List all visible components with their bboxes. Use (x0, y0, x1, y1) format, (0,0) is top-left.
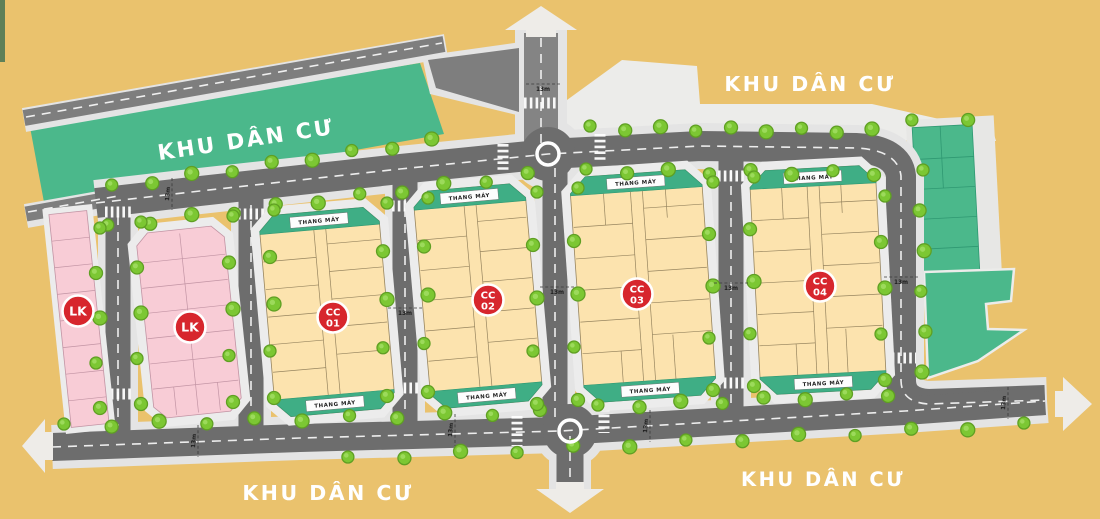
road-width-label: 13m (165, 187, 172, 201)
road-width-label: 13m (191, 434, 198, 448)
tree-icon (422, 386, 435, 399)
tree-icon (1018, 417, 1030, 429)
tree-icon (621, 167, 634, 180)
tree-icon (830, 126, 843, 139)
tree-icon (480, 176, 492, 188)
tree-icon (592, 399, 604, 411)
tree-icon (748, 171, 760, 183)
tree-icon (531, 186, 543, 198)
tree-icon (919, 325, 932, 338)
tree-icon (623, 440, 637, 454)
tree-icon (511, 446, 523, 458)
road-width-label: 13m (643, 419, 650, 433)
badge-number: 02 (481, 302, 495, 313)
tree-icon (661, 163, 675, 177)
tree-icon (268, 392, 281, 405)
tree-icon (580, 163, 592, 175)
tree-icon (690, 125, 702, 137)
tree-icon (915, 285, 927, 297)
edge-green-strip (0, 0, 5, 62)
tree-icon (421, 288, 435, 302)
badge-number: 04 (813, 288, 827, 299)
tree-icon (131, 353, 143, 365)
tree-icon (530, 291, 544, 305)
tree-icon (58, 418, 70, 430)
road-width-label: 13m (894, 280, 908, 286)
tree-icon (961, 423, 975, 437)
tree-icon (744, 223, 757, 236)
badge-code: CC (326, 308, 341, 319)
tree-icon (486, 409, 498, 421)
road-width-label: 13m (448, 423, 455, 437)
tree-icon (707, 384, 720, 397)
badge-code: CC (813, 277, 828, 288)
block-badge-lk2: LK (175, 312, 206, 343)
tree-icon (521, 167, 534, 180)
tree-icon (633, 401, 646, 414)
tree-icon (425, 132, 439, 146)
block-badge-cc02: CC02 (473, 285, 504, 316)
tree-icon (757, 391, 770, 404)
tree-icon (106, 179, 118, 191)
tree-icon (135, 216, 147, 228)
badge-code: CC (481, 291, 496, 302)
tree-icon (381, 390, 394, 403)
tree-icon (796, 122, 808, 134)
tree-icon (152, 414, 166, 428)
tree-icon (305, 153, 319, 167)
tree-icon (913, 204, 926, 217)
tree-icon (265, 156, 278, 169)
tree-icon (90, 267, 103, 280)
tree-icon (531, 398, 544, 411)
tree-icon (865, 122, 879, 136)
tree-icon (785, 167, 799, 181)
tree-icon (94, 402, 107, 415)
tree-icon (377, 342, 389, 354)
tree-icon (747, 275, 761, 289)
tree-icon (295, 414, 309, 428)
tree-icon (798, 393, 812, 407)
tree-icon (135, 398, 148, 411)
tree-icon (201, 418, 213, 430)
badge-code: CC (630, 285, 645, 296)
tree-icon (227, 210, 239, 222)
tree-icon (905, 422, 918, 435)
badge-number: 01 (326, 319, 340, 330)
residential-label-bottom-left: KHU DÂN CƯ (242, 480, 413, 505)
tree-icon (342, 451, 354, 463)
tree-icon (146, 177, 159, 190)
tree-icon (454, 444, 468, 458)
tree-icon (571, 287, 585, 301)
tree-icon (223, 256, 236, 269)
tree-icon (438, 406, 452, 420)
road-width-label: 13m (550, 290, 564, 296)
tree-icon (131, 261, 144, 274)
tree-icon (875, 328, 887, 340)
tree-icon (619, 124, 632, 137)
tree-icon (568, 341, 580, 353)
tree-icon (354, 188, 366, 200)
tree-icon (716, 397, 728, 409)
tree-icon (744, 328, 756, 340)
tree-icon (311, 196, 325, 210)
tree-icon (90, 357, 102, 369)
tree-icon (380, 293, 394, 307)
tree-icon (703, 228, 716, 241)
tree-icon (527, 345, 539, 357)
tree-icon (93, 311, 107, 325)
tree-icon (584, 120, 596, 132)
tree-icon (917, 164, 929, 176)
tree-icon (725, 121, 738, 134)
tree-icon (906, 114, 918, 126)
badge-number: 03 (630, 296, 644, 307)
tree-icon (527, 239, 540, 252)
tree-icon (867, 168, 880, 181)
tree-icon (748, 380, 761, 393)
tree-icon (568, 235, 581, 248)
road-width-label: 13m (398, 311, 412, 317)
tree-icon (105, 420, 118, 433)
tree-icon (707, 176, 719, 188)
tree-icon (264, 251, 277, 264)
tree-icon (572, 394, 585, 407)
tree-icon (264, 345, 276, 357)
tree-icon (437, 176, 451, 190)
tree-icon (875, 236, 888, 249)
tree-icon (827, 165, 839, 177)
tree-icon (134, 306, 148, 320)
tree-icon (185, 167, 199, 181)
tree-icon (381, 197, 393, 209)
road-width-label: 13m (536, 87, 550, 93)
block-badge-cc01: CC01 (318, 302, 349, 333)
tree-icon (386, 142, 399, 155)
tree-icon (398, 452, 411, 465)
tree-icon (674, 394, 688, 408)
tree-icon (759, 125, 773, 139)
tree-icon (878, 281, 892, 295)
tree-icon (706, 279, 720, 293)
tree-icon (418, 240, 431, 253)
tree-icon (572, 182, 584, 194)
tree-icon (391, 412, 404, 425)
road-width-label: 13m (1001, 396, 1008, 410)
residential-label-top-right: KHU DÂN CƯ (724, 71, 895, 96)
tree-icon (792, 427, 806, 441)
tree-icon (248, 412, 261, 425)
tree-icon (917, 244, 931, 258)
tree-icon (223, 350, 235, 362)
site-plan-map: THANG MÁYTHANG MÁYTHANG MÁYTHANG MÁYTHAN… (0, 0, 1100, 519)
tree-icon (268, 204, 280, 216)
tree-icon (346, 145, 358, 157)
block-badge-lk1: LK (63, 296, 94, 327)
tree-icon (879, 190, 891, 202)
master-plan-page: THANG MÁYTHANG MÁYTHANG MÁYTHANG MÁYTHAN… (0, 0, 1100, 519)
tree-icon (422, 192, 434, 204)
tree-icon (94, 222, 106, 234)
tree-icon (680, 434, 692, 446)
tree-icon (915, 365, 929, 379)
tree-icon (962, 113, 975, 126)
residential-label-bottom-right: KHU DÂN CƯ (741, 468, 905, 491)
tree-icon (736, 435, 749, 448)
tree-icon (226, 302, 240, 316)
tree-icon (226, 166, 238, 178)
tree-icon (654, 120, 668, 134)
tree-icon (849, 429, 861, 441)
tree-icon (377, 245, 390, 258)
tree-icon (882, 389, 895, 402)
tree-icon (344, 410, 356, 422)
tree-icon (396, 186, 409, 199)
tree-icon (840, 388, 852, 400)
tree-icon (703, 332, 715, 344)
badge-label: LK (69, 304, 88, 319)
badge-label: LK (181, 320, 200, 335)
block-badge-cc04: CC04 (805, 271, 836, 302)
road-width-label: 13m (724, 286, 738, 292)
block-badge-cc03: CC03 (622, 279, 653, 310)
tree-icon (879, 374, 892, 387)
tree-icon (418, 338, 430, 350)
tree-icon (185, 208, 199, 222)
tree-icon (227, 396, 240, 409)
tree-icon (267, 297, 281, 311)
